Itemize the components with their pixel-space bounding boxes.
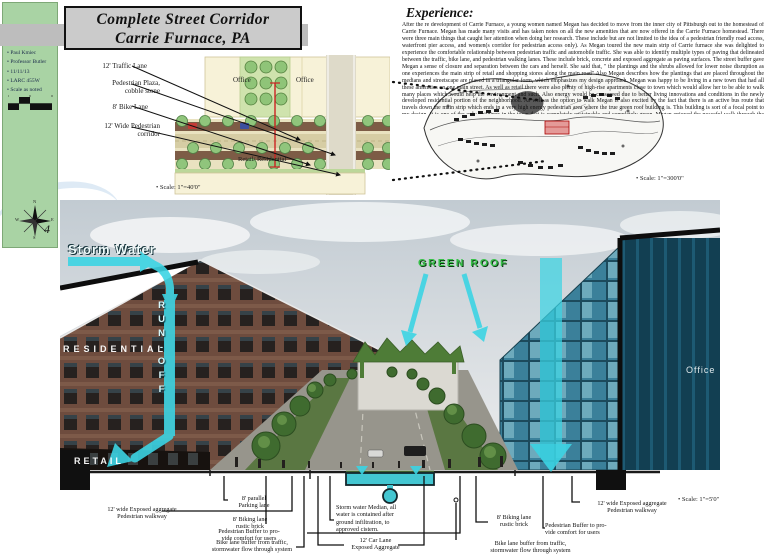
office-building-cut-face: [620, 238, 720, 470]
car-dark: [404, 446, 426, 456]
plan-scale: • Scale: 1"=40'0": [156, 184, 201, 191]
stormwater-median-section: [346, 473, 434, 485]
label-bike-buffer-left: Bike lane buffer from traffic, stormwate…: [193, 539, 311, 554]
experience-heading: Experience:: [406, 5, 764, 21]
focus-area-highlight: [545, 121, 569, 134]
car-light: [368, 450, 383, 457]
scale-bar: [8, 95, 54, 113]
plan-label-pedestrian-corridor: 12' Wide Pedestrian corridor: [60, 122, 160, 138]
render-office-label: Office: [686, 365, 715, 375]
label-pedestrian-walkway-left: 12' wide Exposed aggregate Pedestrian wa…: [82, 506, 202, 521]
retail-label: RETAIL: [74, 456, 124, 466]
professor: Professor Butler: [7, 58, 55, 67]
plan-retail-label: Retail/ Residential: [238, 156, 286, 163]
label-pedestrian-buffer-right: Pedestrian Buffer to pro- vide comfort f…: [545, 522, 637, 537]
experience-paragraph: After the re development of Carrie Furna…: [402, 22, 764, 114]
label-biking-lane-right: 8' Biking lane rustic brick: [480, 514, 548, 529]
label-parking-lane: 8' parallel Parking lane: [220, 495, 288, 510]
plan-label-pedestrian-plaza: Pedestrian Plaza, cobble stone: [72, 79, 160, 95]
label-stormwater-median: Storm water Median, all water is contain…: [336, 504, 416, 533]
label-bike-buffer-right: Bike lane buffer from traffic, stormwate…: [468, 540, 593, 555]
board-title: Complete Street Corridor Carrie Furnace,…: [64, 6, 302, 50]
author: Paul Kmiec: [7, 49, 55, 58]
site-plan-scale: • Scale: 1"=300'0": [636, 175, 684, 182]
plan-office-label-2: Office: [296, 76, 314, 84]
course: LARC 455W: [7, 77, 55, 86]
plan-label-traffic-lane: 12' Traffic Lane: [85, 62, 147, 70]
green-roof-label: GREEN ROOF: [418, 257, 509, 269]
page-number: 4: [44, 222, 50, 237]
project-info-list: Paul Kmiec Professor Butler 11/11/13 LAR…: [3, 49, 57, 96]
plan-label-bike-lane: 8' Bike Lane: [90, 103, 148, 111]
plan-office-label-1: Office: [233, 76, 251, 84]
presentation-board: Paul Kmiec Professor Butler 11/11/13 LAR…: [0, 0, 768, 555]
car-blue: [240, 123, 249, 129]
title-line-1: Complete Street Corridor: [66, 10, 300, 29]
storm-water-label: Storm Water: [68, 242, 156, 257]
label-biking-lane-left: 8' Biking lane rustic brick: [215, 516, 285, 531]
compass-icon: [13, 199, 57, 243]
cistern: [383, 489, 397, 503]
green-roof-building: [358, 358, 458, 410]
north-arrow: N S W E: [13, 199, 57, 243]
run-off-label: RUN-OFF: [156, 300, 167, 420]
title-line-2: Carrie Furnace, PA: [66, 29, 300, 48]
residential-label: RESIDENTIAL: [63, 344, 167, 354]
car-red: [188, 123, 197, 129]
experience-section: Experience: After the re development of …: [402, 5, 764, 114]
label-pedestrian-walkway-right: 12' wide Exposed aggregate Pedestrian wa…: [577, 500, 687, 515]
date: 11/11/13: [7, 68, 55, 77]
label-car-lane: 12' Car Lane Exposed Aggregate: [333, 537, 418, 552]
